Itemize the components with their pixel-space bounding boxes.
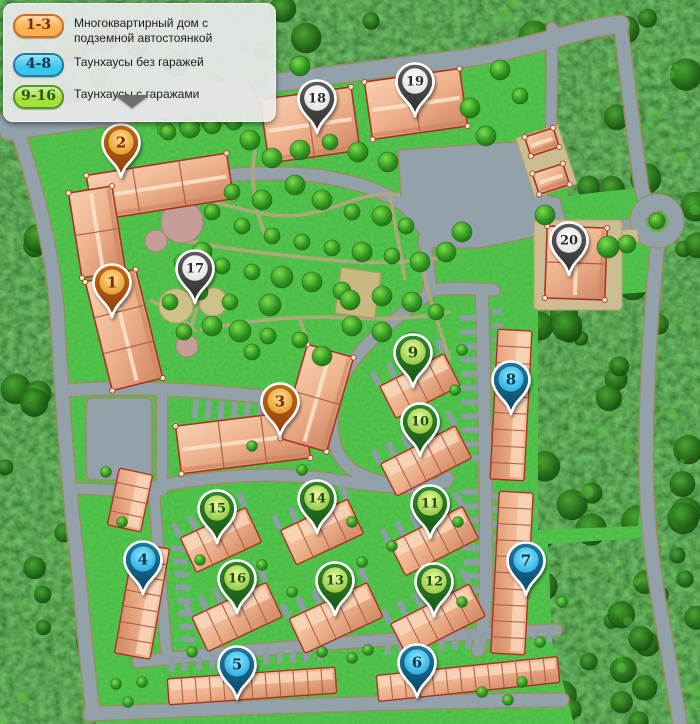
legend-item-townhouse_no_garage: 4-8Таунхаусы без гаражей	[13, 53, 267, 77]
pin-number: 6	[412, 654, 422, 672]
pin-number: 15	[208, 502, 226, 517]
pin-number: 8	[506, 371, 516, 389]
pin-number: 11	[421, 497, 439, 512]
legend-range-badge: 1-3	[13, 14, 64, 38]
pin-number: 4	[138, 551, 148, 569]
pin-number: 12	[425, 575, 443, 590]
legend-item-label: Таунхаусы без гаражей	[74, 53, 204, 70]
pin-number: 3	[275, 393, 285, 411]
pin-number: 9	[408, 344, 418, 362]
pin-number: 17	[186, 262, 204, 277]
pin-number: 13	[326, 574, 344, 589]
pin-number: 16	[228, 572, 246, 587]
legend-item-label: Многоквартирный дом с подземной автостоя…	[74, 14, 267, 45]
pin-number: 10	[411, 415, 429, 430]
pin-number: 1	[107, 274, 117, 292]
legend-range-badge: 4-8	[13, 53, 64, 77]
legend-range-badge: 9-16	[13, 85, 64, 109]
pin-number: 14	[308, 492, 326, 507]
legend-item-apartment: 1-3Многоквартирный дом с подземной автос…	[13, 14, 267, 45]
pin-number: 7	[521, 552, 531, 570]
pin-number: 18	[308, 92, 326, 107]
pin-number: 2	[116, 134, 126, 152]
pin-number: 19	[406, 75, 424, 90]
legend-collapse-button[interactable]	[115, 95, 149, 108]
master-plan-page: 1234567891011121314151617181920 1-3Много…	[0, 0, 700, 724]
pin-number: 5	[232, 656, 242, 674]
pin-number: 20	[560, 234, 578, 249]
